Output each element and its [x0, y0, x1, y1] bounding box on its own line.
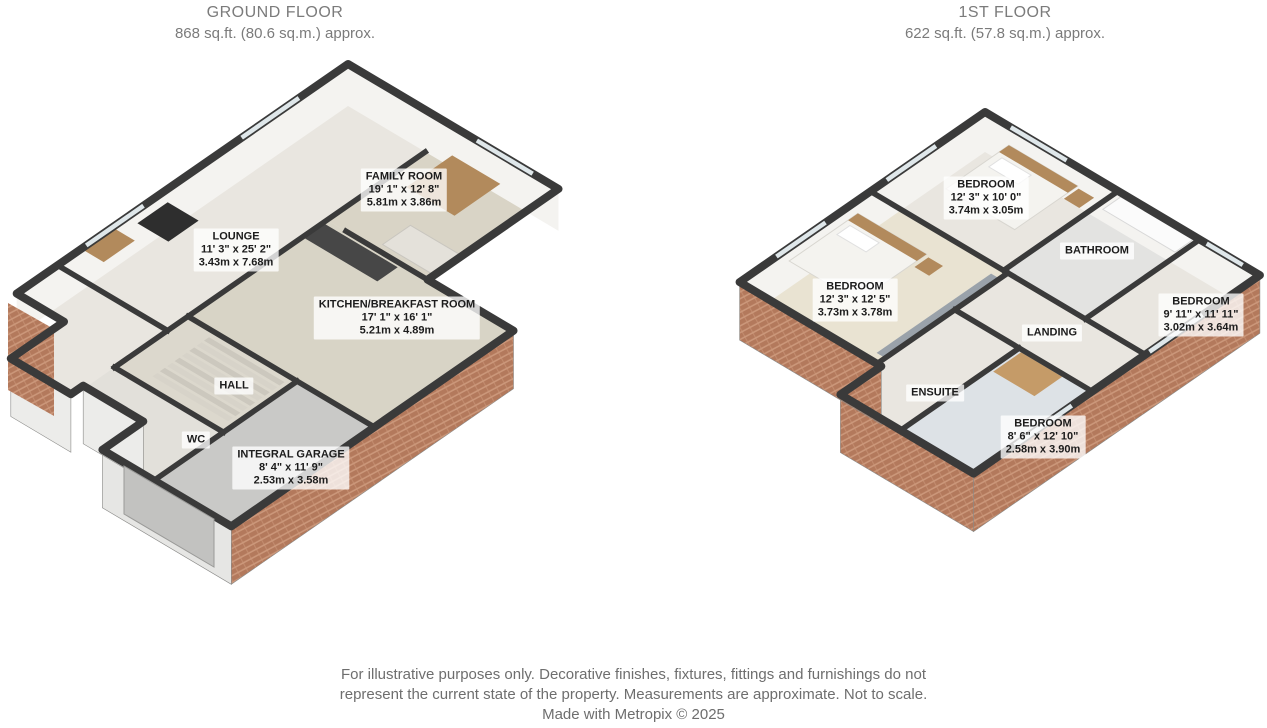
room-label-lounge: LOUNGE 11' 3" x 25' 2" 3.43m x 7.68m — [194, 229, 279, 272]
room-label-wc: WC — [182, 432, 210, 449]
room-label-hall: HALL — [214, 378, 253, 395]
ground-floor-title: GROUND FLOOR — [30, 4, 520, 22]
first-floor-title-block: 1ST FLOOR 622 sq.ft. (57.8 sq.m.) approx… — [760, 4, 1250, 42]
room-label-kitchen: KITCHEN/BREAKFAST ROOM 17' 1" x 16' 1" 5… — [314, 297, 480, 340]
room-name: BEDROOM — [1006, 418, 1081, 431]
room-dims-m: 5.81m x 3.86m — [366, 197, 442, 210]
ground-floor-title-block: GROUND FLOOR 868 sq.ft. (80.6 sq.m.) app… — [30, 4, 520, 42]
room-dims-ft: 8' 6" x 12' 10" — [1006, 431, 1081, 444]
floorplan: GROUND FLOOR 868 sq.ft. (80.6 sq.m.) app… — [0, 0, 1267, 728]
room-label-bedroom-left: BEDROOM 12' 3" x 12' 5" 3.73m x 3.78m — [813, 279, 898, 322]
room-dims-m: 3.73m x 3.78m — [818, 307, 893, 320]
room-dims-ft: 17' 1" x 16' 1" — [319, 312, 475, 325]
first-floor-area: 622 sq.ft. (57.8 sq.m.) approx. — [760, 25, 1250, 42]
room-name: ENSUITE — [911, 387, 959, 400]
room-dims-m: 2.53m x 3.58m — [237, 475, 344, 488]
ground-floor-area: 868 sq.ft. (80.6 sq.m.) approx. — [30, 25, 520, 42]
room-label-landing: LANDING — [1022, 325, 1082, 342]
room-name: FAMILY ROOM — [366, 171, 442, 184]
room-name: BEDROOM — [949, 179, 1024, 192]
room-dims-m: 3.74m x 3.05m — [949, 205, 1024, 218]
room-name: BEDROOM — [818, 281, 893, 294]
room-name: LANDING — [1027, 327, 1077, 340]
room-dims-ft: 12' 3" x 12' 5" — [818, 294, 893, 307]
room-name: BATHROOM — [1065, 245, 1129, 258]
room-dims-ft: 19' 1" x 12' 8" — [366, 184, 442, 197]
room-label-garage: INTEGRAL GARAGE 8' 4" x 11' 9" 2.53m x 3… — [232, 447, 349, 490]
room-dims-ft: 11' 3" x 25' 2" — [199, 244, 274, 257]
room-name: BEDROOM — [1163, 296, 1238, 309]
room-dims-ft: 12' 3" x 10' 0" — [949, 192, 1024, 205]
disclaimer: For illustrative purposes only. Decorati… — [0, 665, 1267, 725]
disclaimer-line-1: For illustrative purposes only. Decorati… — [0, 665, 1267, 685]
room-name: INTEGRAL GARAGE — [237, 449, 344, 462]
room-dims-ft: 9' 11" x 11' 11" — [1163, 309, 1238, 322]
room-label-bedroom-right: BEDROOM 9' 11" x 11' 11" 3.02m x 3.64m — [1158, 294, 1243, 337]
room-dims-ft: 8' 4" x 11' 9" — [237, 462, 344, 475]
room-label-family-room: FAMILY ROOM 19' 1" x 12' 8" 5.81m x 3.86… — [361, 169, 447, 212]
room-dims-m: 2.58m x 3.90m — [1006, 444, 1081, 457]
room-name: KITCHEN/BREAKFAST ROOM — [319, 299, 475, 312]
room-name: LOUNGE — [199, 231, 274, 244]
room-dims-m: 3.43m x 7.68m — [199, 257, 274, 270]
first-floor-title: 1ST FLOOR — [760, 4, 1250, 22]
room-label-ensuite: ENSUITE — [906, 385, 964, 402]
room-name: WC — [187, 434, 205, 447]
room-dims-m: 5.21m x 4.89m — [319, 325, 475, 338]
room-label-bedroom-front: BEDROOM 8' 6" x 12' 10" 2.58m x 3.90m — [1001, 416, 1086, 459]
room-label-bedroom-back: BEDROOM 12' 3" x 10' 0" 3.74m x 3.05m — [944, 177, 1029, 220]
room-dims-m: 3.02m x 3.64m — [1163, 322, 1238, 335]
floorplan-canvas — [0, 0, 1267, 728]
room-label-bathroom: BATHROOM — [1060, 243, 1134, 260]
disclaimer-line-3: Made with Metropix © 2025 — [0, 705, 1267, 725]
room-name: HALL — [219, 380, 248, 393]
disclaimer-line-2: represent the current state of the prope… — [0, 685, 1267, 705]
